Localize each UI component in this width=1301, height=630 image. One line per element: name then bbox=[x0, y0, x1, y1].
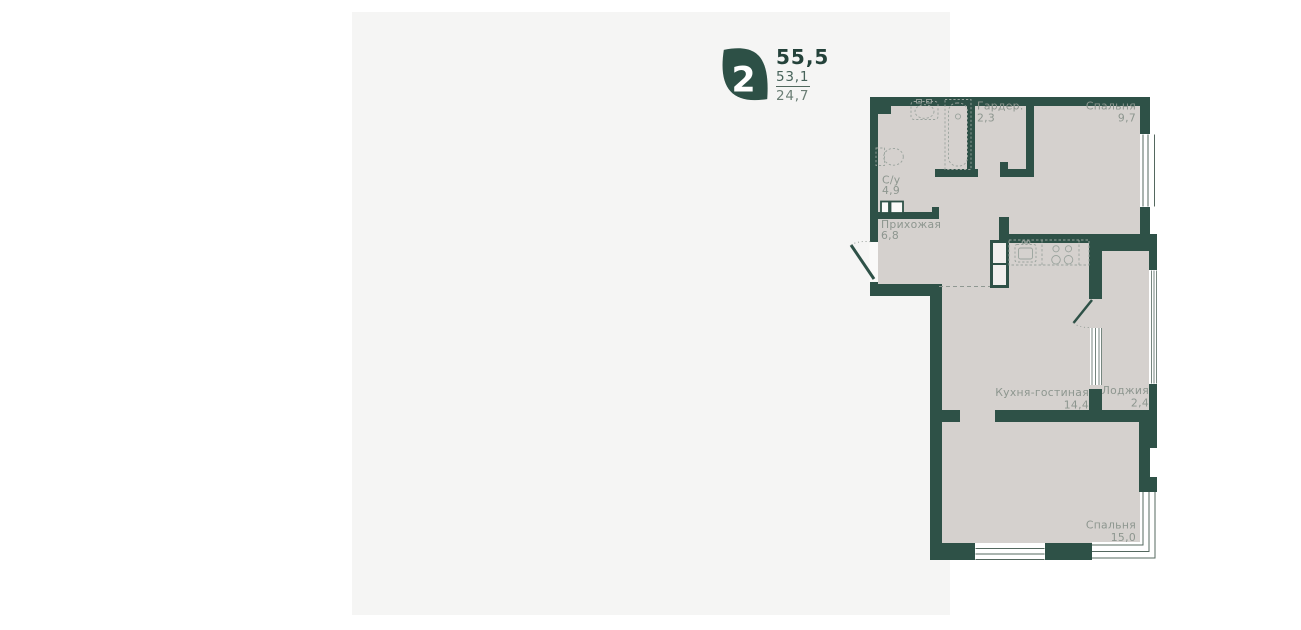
room-area-wardrobe: 2,3 bbox=[977, 112, 995, 125]
leaf-logo: 2 bbox=[719, 44, 773, 104]
rooms-count: 2 bbox=[732, 60, 756, 100]
apartment-card: 2 55,5 53,1 24,7 bbox=[352, 12, 950, 615]
floor-plan: С/у 4,9 Гардер. 2,3 Спальня 9,7 Прихожая… bbox=[842, 92, 1164, 570]
entry-door bbox=[851, 242, 878, 282]
bedroom-9-window bbox=[1140, 134, 1157, 207]
living-area-value: 53,1 bbox=[776, 69, 810, 87]
loggia-window bbox=[1149, 270, 1157, 384]
room-area-kitchen-living: 14,4 bbox=[1064, 399, 1089, 412]
loggia-glazing bbox=[1090, 328, 1102, 385]
room-area-bedroom-1: 9,7 bbox=[1118, 112, 1136, 125]
total-area-value: 55,5 bbox=[776, 45, 829, 69]
room-area-bedroom-2: 15,0 bbox=[1111, 531, 1136, 544]
room-label-loggia: Лоджия bbox=[1102, 384, 1149, 397]
room-label-bedroom-2: Спальня bbox=[1086, 519, 1136, 532]
page: 2 55,5 53,1 24,7 bbox=[0, 0, 1301, 630]
room-area-bathroom: 4,9 bbox=[882, 184, 900, 197]
duct-shaft bbox=[881, 202, 903, 214]
apartment-floor bbox=[870, 97, 1157, 560]
room-label-kitchen-living: Кухня-гостиная bbox=[995, 386, 1089, 399]
bedroom-15-window bbox=[975, 543, 1045, 563]
room-area-hallway: 6,8 bbox=[881, 229, 899, 242]
kitchen-area-value: 24,7 bbox=[776, 88, 809, 104]
room-area-loggia: 2,4 bbox=[1131, 397, 1149, 410]
